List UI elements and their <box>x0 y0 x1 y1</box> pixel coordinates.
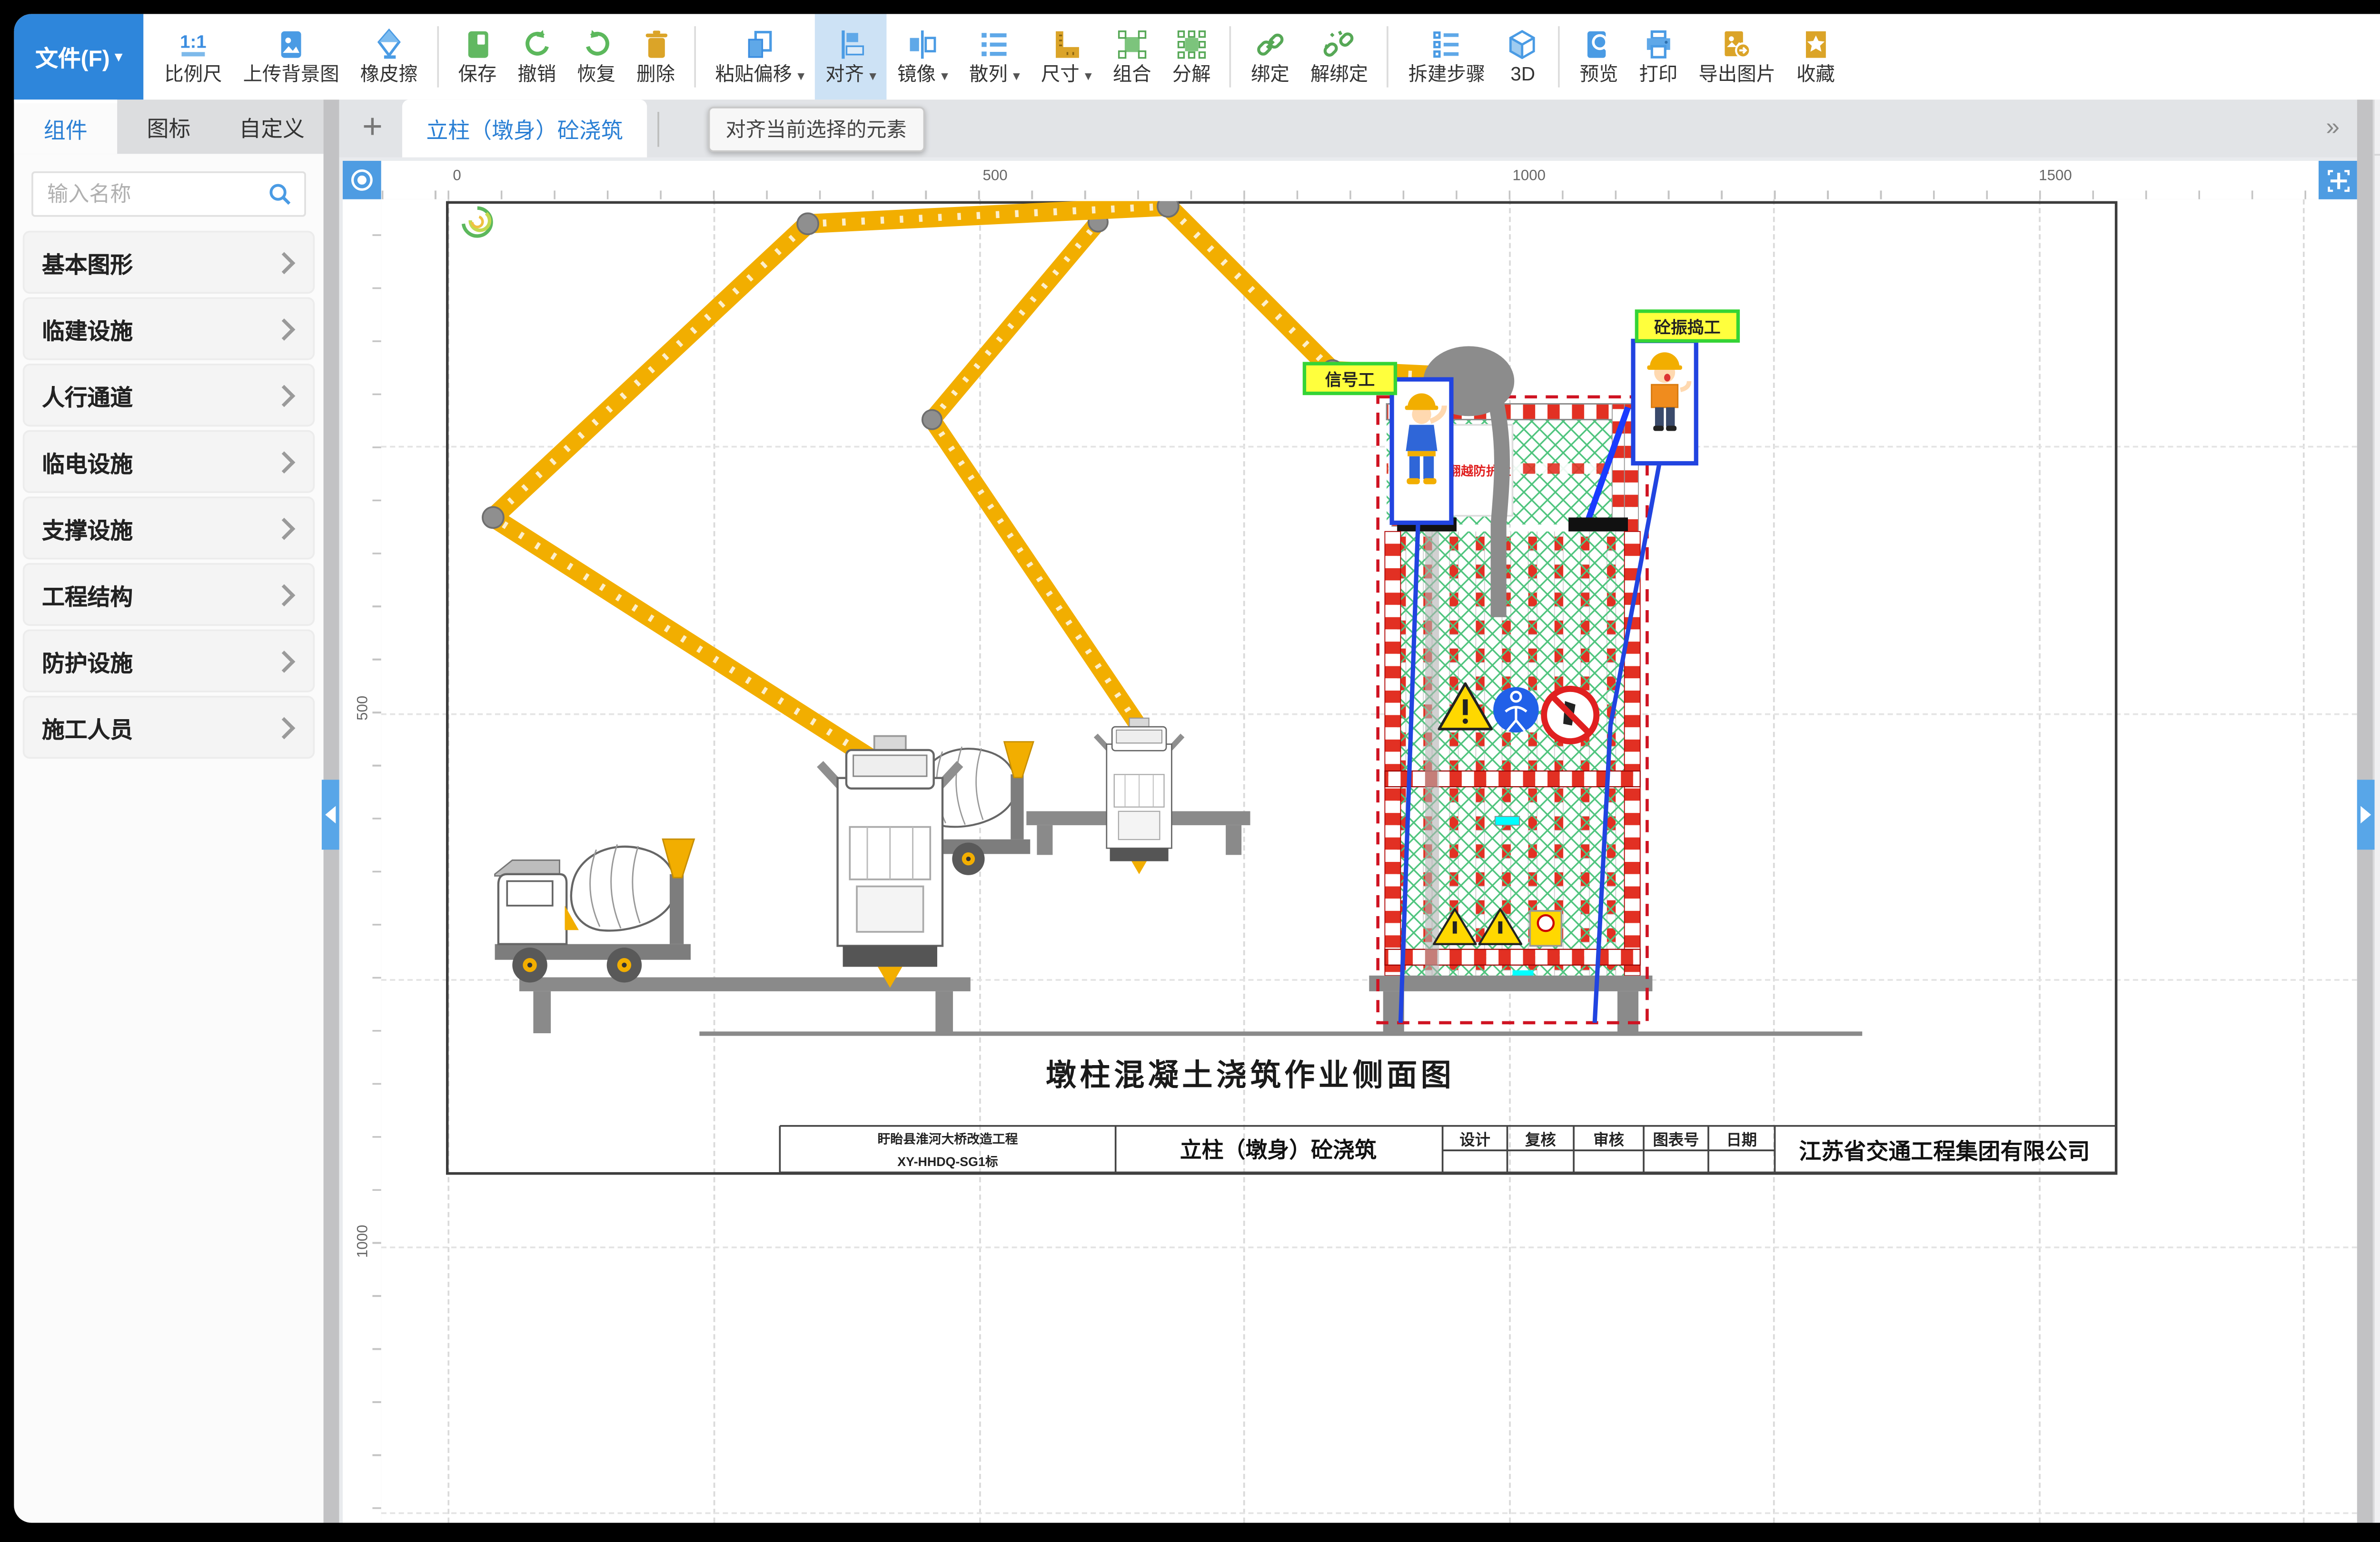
tab-overflow-icon[interactable]: » <box>2326 112 2340 140</box>
sidebar-tab-components[interactable]: 组件 <box>14 99 117 154</box>
tool-eraser[interactable]: 橡皮擦 <box>350 14 428 99</box>
tool-scale-ruler[interactable]: 1:1比例尺 <box>154 14 232 99</box>
prop-row-border-height: 边框高度 <box>2375 691 2380 739</box>
chevron-right-icon <box>273 450 296 473</box>
panel-scrollbar[interactable] <box>2357 99 2373 1522</box>
search-input[interactable] <box>31 171 306 217</box>
company-name: 江苏省交通工程集团有限公司 <box>1799 1139 2090 1164</box>
triangle-left-icon <box>325 806 336 823</box>
chevron-right-icon <box>273 583 296 606</box>
tool-size[interactable]: 尺寸 ▾ <box>1031 14 1102 99</box>
sidebar-item-engineering-structure[interactable]: 工程结构 <box>23 563 315 626</box>
sidebar-item-temp-facilities[interactable]: 临建设施 <box>23 297 315 360</box>
tool-favorite[interactable]: 收藏 <box>1786 14 1845 99</box>
tab-separator <box>657 112 659 147</box>
tool-mirror[interactable]: 镜像 ▾ <box>887 14 959 99</box>
signal-worker-label: 信号工 <box>1325 371 1375 389</box>
svg-text:日期: 日期 <box>1726 1131 1757 1148</box>
search-icon[interactable] <box>268 182 292 206</box>
toolbar-divider <box>694 26 696 88</box>
align-icon <box>834 28 868 61</box>
prop-row-scale: 比例 <box>2375 500 2380 548</box>
canvas-region: + 立柱（墩身）砼浇筑 » 0 500 1000 1500 500 1000 <box>339 99 2357 1522</box>
sidebar-search <box>14 154 323 231</box>
save-icon <box>461 28 494 61</box>
svg-text:设计: 设计 <box>1459 1131 1490 1148</box>
prop-row-font-family: 字体类型Arial <box>2375 930 2380 979</box>
svg-text:图表号: 图表号 <box>1653 1131 1699 1148</box>
prop-row-grid-snap: 网格吸附否 <box>2375 404 2380 452</box>
triangle-right-icon <box>2360 806 2371 823</box>
group-icon <box>1115 28 1149 61</box>
app-window: 文件(F)▾ 1:1比例尺 上传背景图 橡皮擦 保存 撤销 恢复 删除 粘贴偏移… <box>14 14 2380 1522</box>
sidebar-item-temp-power[interactable]: 临电设施 <box>23 430 315 493</box>
panel-collapse-handle[interactable] <box>2357 780 2375 850</box>
toolbar-divider <box>1558 26 1560 88</box>
prop-row-border-color: 边框颜色 <box>2375 787 2380 835</box>
prop-row-lock: 锁定否 <box>2375 212 2380 260</box>
tool-redo[interactable]: 恢复 <box>566 14 626 99</box>
prohibition-sign <box>1544 689 1597 741</box>
tool-preview[interactable]: 预览 <box>1569 14 1629 99</box>
svg-text:1:1: 1:1 <box>180 32 206 52</box>
tool-delete[interactable]: 删除 <box>626 14 685 99</box>
vertical-ruler: 500 1000 <box>343 199 383 1523</box>
caret-down-icon: ▾ <box>797 68 804 84</box>
chevron-right-icon <box>273 716 296 739</box>
watermark-swirl-logo <box>463 208 491 236</box>
screenshot-stage: 文件(F)▾ 1:1比例尺 上传背景图 橡皮擦 保存 撤销 恢复 删除 粘贴偏移… <box>0 0 2380 1542</box>
star-icon <box>1799 28 1833 61</box>
new-tab-button[interactable]: + <box>350 99 396 157</box>
mandatory-sign-blue <box>1493 687 1539 733</box>
document-tab[interactable]: 立柱（墩身）砼浇筑 <box>402 99 647 157</box>
sidebar-tab-icons[interactable]: 图标 <box>117 99 220 154</box>
chevron-right-icon <box>273 650 296 672</box>
project-name: 盱眙县淮河大桥改造工程 <box>878 1132 1018 1146</box>
panel-tabs: 属性 图层 <box>2375 99 2380 156</box>
outrigger-frame-left <box>519 977 971 1033</box>
tool-undo[interactable]: 撤销 <box>507 14 566 99</box>
chevron-right-icon <box>273 317 296 340</box>
warning-signs-lower <box>1434 909 1561 946</box>
document-tabbar: + 立柱（墩身）砼浇筑 » <box>339 99 2357 157</box>
file-menu-button[interactable]: 文件(F)▾ <box>14 14 143 99</box>
tool-print[interactable]: 打印 <box>1628 14 1688 99</box>
cube-3d-icon <box>1506 28 1539 61</box>
tool-unbind[interactable]: 解绑定 <box>1300 14 1378 99</box>
horizontal-ruler: 0 500 1000 1500 <box>381 161 2357 201</box>
sidebar-scrollbar[interactable] <box>324 99 339 1522</box>
tool-upload-background[interactable]: 上传背景图 <box>233 14 350 99</box>
distribute-icon <box>978 28 1011 61</box>
toolbar-divider <box>437 26 439 88</box>
paste-offset-icon <box>743 28 776 61</box>
tab-properties[interactable]: 属性 <box>2375 99 2380 154</box>
caret-down-icon: ▾ <box>115 49 122 65</box>
prop-row-background-manage: 背景图管理操作 <box>2375 308 2380 356</box>
property-rows: 名称 锁定否 背景图空 背景图管理操作 适配背景图否 网格吸附否 图层 比例 填… <box>2375 156 2380 1074</box>
tool-bind[interactable]: 绑定 <box>1240 14 1300 99</box>
mirror-icon <box>906 28 940 61</box>
sidebar-tabs: 组件 图标 自定义 <box>14 99 323 154</box>
ungroup-icon <box>1175 28 1208 61</box>
tool-paste-offset[interactable]: 粘贴偏移 ▾ <box>704 14 815 99</box>
main-content: 组件 图标 自定义 基本图形 临建设施 人行通道 临电设施 支撑设施 工程结构 … <box>14 99 2380 1522</box>
prop-row-fit-background: 适配背景图否 <box>2375 356 2380 404</box>
drawing-title: 墩柱混凝土浇筑作业侧面图 <box>1046 1058 1455 1092</box>
steps-list-icon <box>1430 28 1463 61</box>
canvas[interactable]: 禁止翻越防护栏 <box>381 199 2357 1523</box>
sidebar-item-support-facilities[interactable]: 支撑设施 <box>23 496 315 559</box>
tool-align[interactable]: 对齐 ▾ <box>815 14 887 99</box>
sidebar-item-pedestrian-passage[interactable]: 人行通道 <box>23 364 315 426</box>
tool-items: 1:1比例尺 上传背景图 橡皮擦 保存 撤销 恢复 删除 粘贴偏移 ▾ 对齐 ▾… <box>143 14 1845 99</box>
eraser-icon <box>372 28 406 61</box>
ruler-icon <box>1050 28 1083 61</box>
tool-ungroup[interactable]: 分解 <box>1162 14 1221 99</box>
component-categories: 基本图形 临建设施 人行通道 临电设施 支撑设施 工程结构 防护设施 施工人员 <box>14 231 323 759</box>
align-tooltip: 对齐当前选择的元素 <box>708 107 924 152</box>
tool-group[interactable]: 组合 <box>1102 14 1162 99</box>
redo-icon <box>580 28 613 61</box>
svg-text:审核: 审核 <box>1593 1131 1624 1148</box>
drawing-name: 立柱（墩身）砼浇筑 <box>1180 1137 1377 1162</box>
mixer-truck-1[interactable] <box>495 839 694 982</box>
sidebar-tab-custom[interactable]: 自定义 <box>220 99 324 154</box>
caret-down-icon: ▾ <box>941 68 948 84</box>
prop-row-border-length: 边框长度 <box>2375 643 2380 691</box>
vibrator-worker-label: 砼振捣工 <box>1654 318 1720 337</box>
caret-down-icon: ▾ <box>1013 68 1020 84</box>
sidebar-item-construction-workers[interactable]: 施工人员 <box>23 696 315 759</box>
export-image-icon <box>1720 28 1754 61</box>
toolbar-divider <box>1387 26 1389 88</box>
sidebar-item-protection-facilities[interactable]: 防护设施 <box>23 629 315 692</box>
prop-row-fill-color: 填充颜色 <box>2375 547 2380 595</box>
trash-icon <box>639 28 673 61</box>
prop-row-x-guide: X轴辅助线 <box>2375 979 2380 1027</box>
svg-text:复核: 复核 <box>1525 1131 1556 1148</box>
ground-line <box>699 1031 1862 1036</box>
prop-row-frame-size: 制图框尺寸自定义 <box>2375 595 2380 643</box>
preview-icon <box>1582 28 1616 61</box>
prop-row-name: 名称 <box>2375 164 2380 212</box>
tool-export-image[interactable]: 导出图片 <box>1688 14 1786 99</box>
sidebar-item-basic-shapes[interactable]: 基本图形 <box>23 231 315 294</box>
toolbar: 文件(F)▾ 1:1比例尺 上传背景图 橡皮擦 保存 撤销 恢复 删除 粘贴偏移… <box>14 14 2380 101</box>
chevron-right-icon <box>273 384 296 406</box>
caret-down-icon: ▾ <box>869 68 876 84</box>
tool-save[interactable]: 保存 <box>447 14 507 99</box>
link-icon <box>1253 28 1287 61</box>
prop-row-infobox-height: 信息框高度 <box>2375 739 2380 787</box>
fit-view-button[interactable] <box>2319 161 2357 199</box>
pump-boom-b[interactable] <box>922 212 1139 725</box>
prop-row-border-width: 边框宽度 <box>2375 835 2380 883</box>
printer-icon <box>1642 28 1675 61</box>
unlink-icon <box>1323 28 1356 61</box>
chevron-right-icon <box>273 517 296 539</box>
prop-row-layer: 图层 <box>2375 452 2380 500</box>
upload-image-icon <box>275 28 308 61</box>
prop-row-y-guide: Y轴辅助线 <box>2375 1026 2380 1074</box>
undo-icon <box>520 28 554 61</box>
tool-3d[interactable]: 3D <box>1496 14 1550 99</box>
title-block-table: 盱眙县淮河大桥改造工程 XY-HHDQ-SG1标 立柱（墩身）砼浇筑 设计 复核… <box>780 1126 2116 1173</box>
sidebar: 组件 图标 自定义 基本图形 临建设施 人行通道 临电设施 支撑设施 工程结构 … <box>14 99 323 1522</box>
scale-1-1-icon: 1:1 <box>177 28 210 61</box>
pump-truck-b[interactable] <box>1096 718 1182 874</box>
drawing-svg[interactable]: 禁止翻越防护栏 <box>446 201 2118 1175</box>
prop-row-background-image: 背景图空 <box>2375 260 2380 308</box>
project-code: XY-HHDQ-SG1标 <box>897 1155 998 1169</box>
ruler-origin-button[interactable] <box>343 161 381 199</box>
chevron-right-icon <box>273 251 296 274</box>
sidebar-collapse-handle[interactable] <box>322 780 339 850</box>
prop-row-font-size: 字体大小24 <box>2375 883 2380 931</box>
caret-down-icon: ▾ <box>1085 68 1092 84</box>
toolbar-divider <box>1230 26 1232 88</box>
tool-build-steps[interactable]: 拆建步骤 <box>1398 14 1496 99</box>
tool-distribute[interactable]: 散列 ▾ <box>959 14 1031 99</box>
drawing-frame <box>447 202 2116 1173</box>
